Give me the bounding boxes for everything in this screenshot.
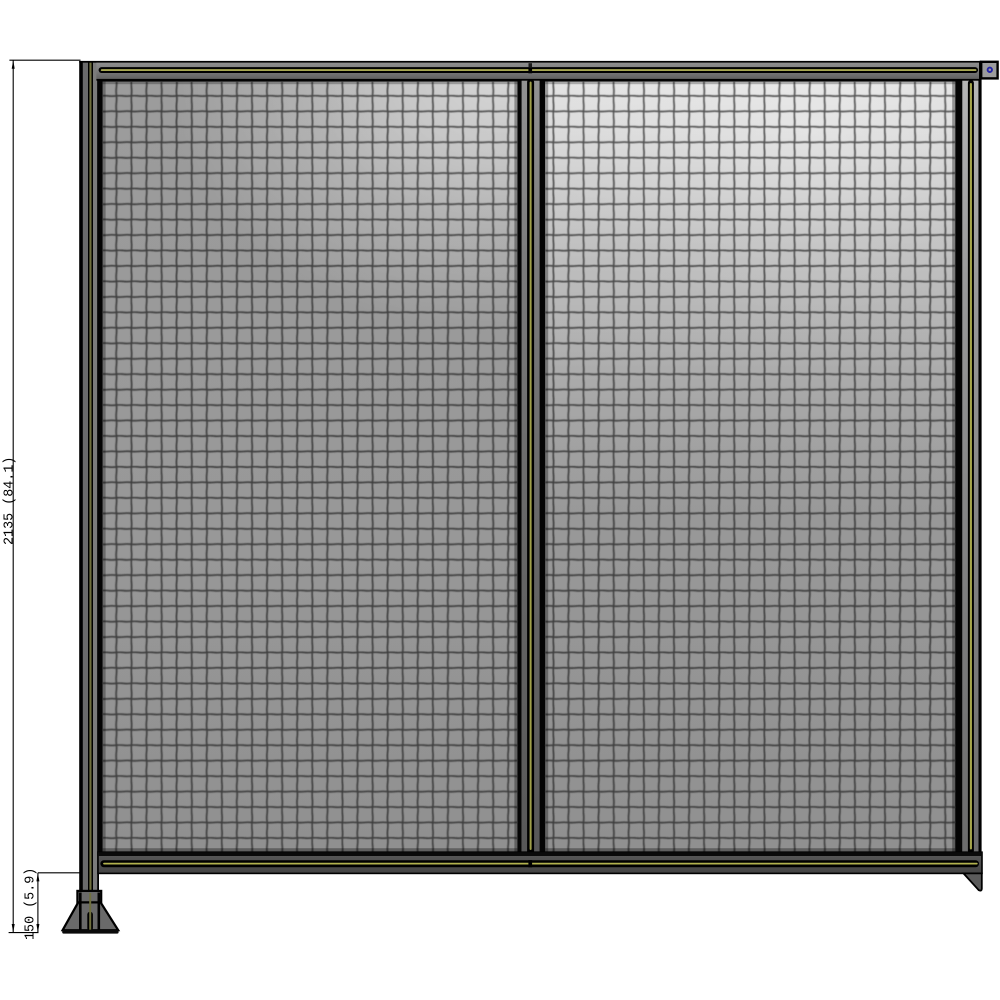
svg-text:2135 (84.1): 2135 (84.1) xyxy=(2,457,17,545)
svg-text:150 (5.9): 150 (5.9) xyxy=(23,868,38,940)
